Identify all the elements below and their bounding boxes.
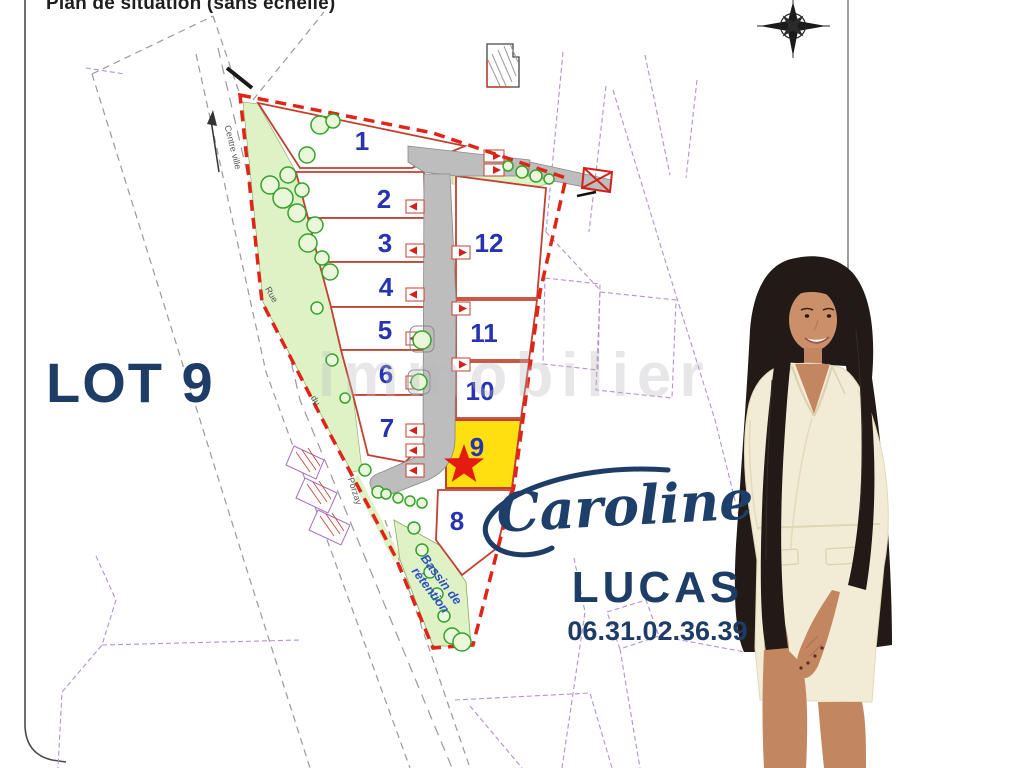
flyer: 1 2 3 4 5 6 7 8 9 10 11 12 Centre ville … xyxy=(0,0,1024,768)
plan-title: Plan de situation (sans échelle) xyxy=(46,0,335,15)
compass-rose-icon xyxy=(757,0,830,58)
agent-last-name: LUCAS xyxy=(540,563,775,613)
leg xyxy=(818,702,866,768)
existing-building-north xyxy=(487,44,519,87)
lot-number-1: 1 xyxy=(355,126,369,156)
watermark: immobilier xyxy=(318,340,712,411)
direction-arrow-icon xyxy=(207,110,217,126)
agent-phone: 06.31.02.36.39 xyxy=(540,616,775,647)
lot-number-7: 7 xyxy=(380,413,394,443)
lot-number-2: 2 xyxy=(377,184,391,214)
lot-number-3: 3 xyxy=(378,228,392,258)
lot-number-9: 9 xyxy=(470,432,484,462)
street-mark xyxy=(227,68,252,88)
street-label-centre-ville: Centre ville xyxy=(223,124,244,170)
existing-buildings-street xyxy=(286,446,350,545)
agent-photo xyxy=(735,256,892,768)
lot-number-12: 12 xyxy=(475,228,504,258)
lot-callout: LOT 9 xyxy=(46,350,215,415)
lot-number-4: 4 xyxy=(379,272,394,302)
agent-first-name: Caroline xyxy=(494,467,757,545)
lot-number-8: 8 xyxy=(450,506,464,536)
